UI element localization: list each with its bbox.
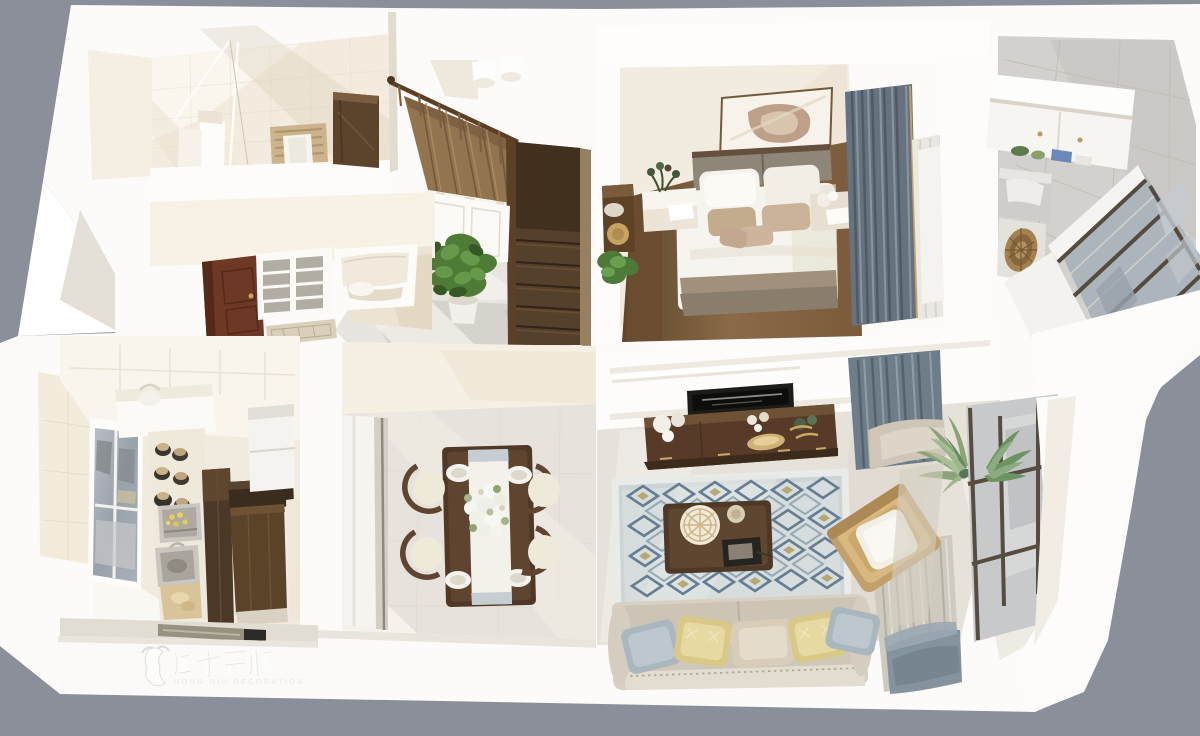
svg-text:HONG NIU DECORATION: HONG NIU DECORATION bbox=[174, 677, 305, 686]
